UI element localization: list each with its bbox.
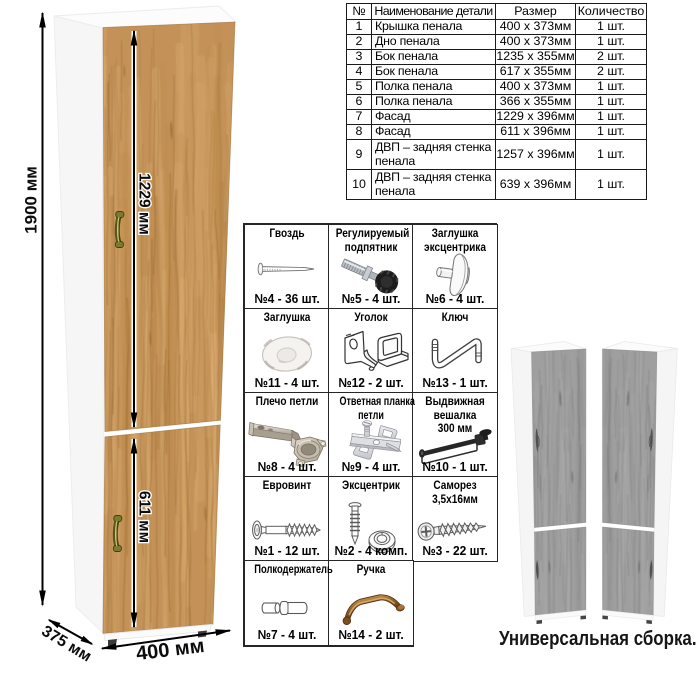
- svg-text:1900 мм: 1900 мм: [22, 166, 41, 234]
- svg-text:400 мм: 400 мм: [135, 635, 206, 665]
- svg-text:611 мм: 611 мм: [136, 491, 153, 543]
- svg-text:1229 мм: 1229 мм: [136, 173, 153, 235]
